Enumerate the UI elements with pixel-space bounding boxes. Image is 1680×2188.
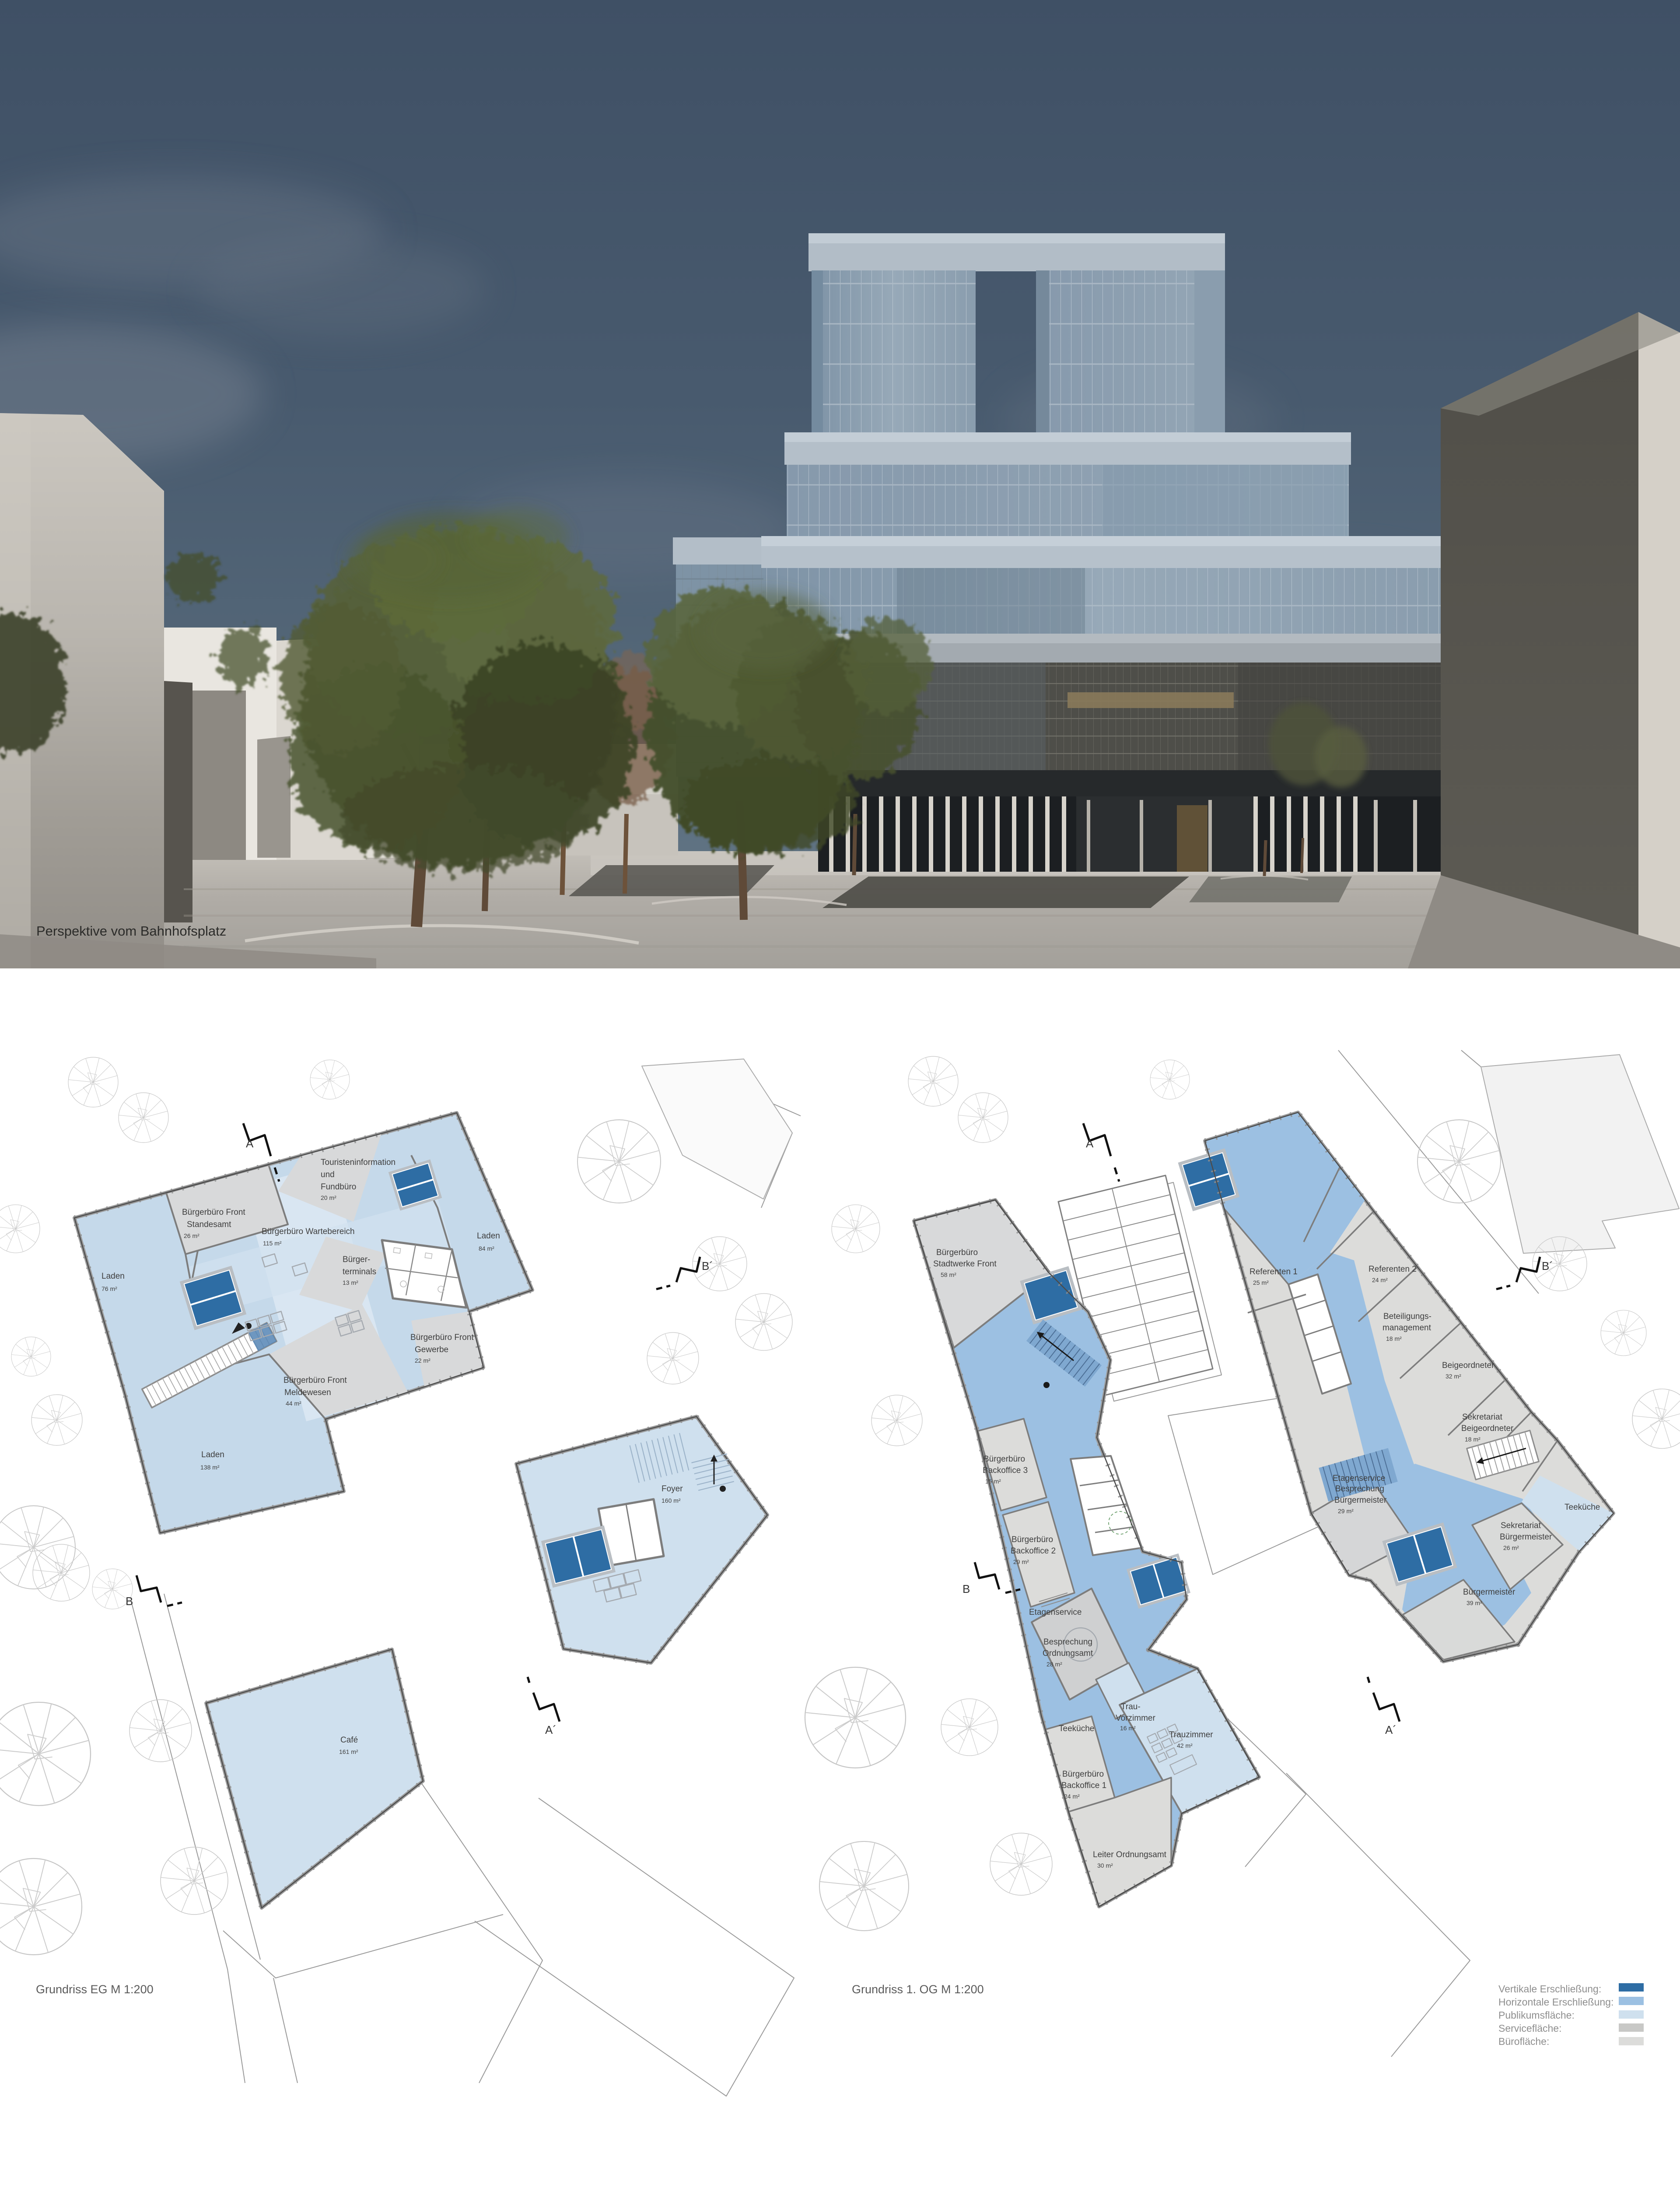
svg-text:28 m²: 28 m²: [1046, 1661, 1062, 1668]
svg-text:Bürgerbüro: Bürgerbüro: [1062, 1770, 1104, 1779]
svg-text:Laden: Laden: [477, 1231, 500, 1241]
svg-text:18 m²: 18 m²: [1465, 1436, 1480, 1443]
svg-text:Etagenservice: Etagenservice: [1333, 1474, 1385, 1483]
svg-text:management: management: [1382, 1323, 1431, 1332]
svg-text:Bürgerbüro: Bürgerbüro: [936, 1248, 978, 1257]
svg-text:A´: A´: [545, 1723, 556, 1736]
svg-text:Horizontale Erschließung:: Horizontale Erschließung:: [1498, 1996, 1613, 2008]
svg-text:Beteiligungs-: Beteiligungs-: [1383, 1312, 1431, 1321]
svg-text:B´: B´: [702, 1259, 713, 1273]
svg-text:Leiter Ordnungsamt: Leiter Ordnungsamt: [1093, 1850, 1167, 1859]
svg-text:und: und: [321, 1170, 335, 1179]
svg-text:Ordnungsamt: Ordnungsamt: [1043, 1649, 1093, 1658]
svg-text:58 m²: 58 m²: [941, 1271, 956, 1278]
svg-text:B: B: [962, 1582, 970, 1595]
svg-text:Servicefläche:: Servicefläche:: [1498, 2023, 1561, 2034]
svg-text:44 m²: 44 m²: [286, 1400, 301, 1407]
svg-text:Meldewesen: Meldewesen: [284, 1388, 331, 1397]
svg-text:Referenten 1: Referenten 1: [1249, 1267, 1298, 1276]
svg-text:18 m²: 18 m²: [1386, 1335, 1402, 1342]
svg-text:Trauzimmer: Trauzimmer: [1169, 1730, 1213, 1739]
svg-text:Grundriss 1. OG M 1:200: Grundriss 1. OG M 1:200: [852, 1983, 984, 1996]
svg-text:Perspektive vom Bahnhofsplatz: Perspektive vom Bahnhofsplatz: [36, 923, 226, 939]
svg-text:Laden: Laden: [101, 1272, 125, 1281]
svg-text:16 m²: 16 m²: [1120, 1725, 1136, 1732]
svg-text:Referenten 2: Referenten 2: [1368, 1265, 1417, 1274]
svg-text:24 m²: 24 m²: [1372, 1276, 1388, 1283]
svg-text:76 m²: 76 m²: [101, 1285, 117, 1292]
svg-text:Stadtwerke Front: Stadtwerke Front: [933, 1259, 997, 1269]
svg-text:A: A: [246, 1137, 254, 1150]
svg-text:25 m²: 25 m²: [1253, 1279, 1269, 1286]
svg-text:138 m²: 138 m²: [200, 1464, 220, 1471]
svg-text:A´: A´: [1385, 1723, 1396, 1736]
svg-text:Touristeninformation: Touristeninformation: [321, 1158, 395, 1167]
svg-text:Vertikale Erschließung:: Vertikale Erschließung:: [1498, 1983, 1601, 1995]
svg-text:29 m²: 29 m²: [1013, 1558, 1029, 1565]
svg-text:Besprechung: Besprechung: [1335, 1484, 1384, 1494]
svg-text:Backoffice 2: Backoffice 2: [1011, 1546, 1056, 1556]
svg-text:B´: B´: [1542, 1259, 1553, 1273]
svg-text:115 m²: 115 m²: [263, 1240, 282, 1247]
svg-text:Standesamt: Standesamt: [187, 1220, 231, 1229]
svg-text:Sekretariat: Sekretariat: [1462, 1413, 1503, 1422]
svg-text:terminals: terminals: [343, 1267, 376, 1276]
svg-text:Bürgermeister: Bürgermeister: [1500, 1532, 1552, 1542]
svg-text:Teeküche: Teeküche: [1564, 1503, 1600, 1512]
svg-text:Bürgerbüro: Bürgerbüro: [983, 1455, 1025, 1464]
svg-text:B: B: [126, 1595, 133, 1608]
svg-text:29 m²: 29 m²: [1338, 1508, 1354, 1515]
svg-text:26 m²: 26 m²: [1503, 1544, 1519, 1551]
svg-text:A: A: [1086, 1137, 1094, 1150]
svg-text:Beigeordneter: Beigeordneter: [1461, 1424, 1514, 1433]
svg-text:Gewerbe: Gewerbe: [415, 1345, 448, 1354]
svg-text:Bürger-: Bürger-: [343, 1255, 370, 1264]
svg-text:160 m²: 160 m²: [661, 1497, 681, 1504]
svg-text:Laden: Laden: [201, 1450, 224, 1459]
svg-text:32 m²: 32 m²: [1445, 1373, 1461, 1380]
svg-text:Fundbüro: Fundbüro: [321, 1182, 356, 1192]
svg-text:Etagenservice: Etagenservice: [1029, 1608, 1081, 1617]
svg-text:Sekretariat: Sekretariat: [1501, 1521, 1541, 1530]
svg-text:Bürgerbüro Front: Bürgerbüro Front: [283, 1376, 347, 1385]
svg-text:Bürgermeister: Bürgermeister: [1334, 1496, 1387, 1505]
svg-text:13 m²: 13 m²: [343, 1279, 358, 1286]
svg-text:30 m²: 30 m²: [1097, 1862, 1113, 1869]
svg-text:Bürofläche:: Bürofläche:: [1498, 2036, 1549, 2047]
svg-text:Besprechung: Besprechung: [1043, 1637, 1092, 1647]
svg-text:Backoffice 3: Backoffice 3: [983, 1466, 1028, 1475]
svg-text:Bürgerbüro Front: Bürgerbüro Front: [182, 1208, 245, 1217]
svg-text:Bürgerbüro: Bürgerbüro: [1011, 1535, 1053, 1544]
svg-text:22 m²: 22 m²: [415, 1357, 430, 1364]
svg-text:Trau-: Trau-: [1121, 1702, 1141, 1711]
svg-text:84 m²: 84 m²: [479, 1245, 494, 1252]
svg-text:Teeküche: Teeküche: [1059, 1724, 1094, 1733]
svg-text:20 m²: 20 m²: [321, 1194, 336, 1201]
svg-text:Bürgermeister: Bürgermeister: [1463, 1588, 1515, 1597]
svg-text:Café: Café: [340, 1736, 358, 1745]
svg-text:Bürgerbüro Front: Bürgerbüro Front: [410, 1333, 474, 1342]
svg-text:Backoffice 1: Backoffice 1: [1061, 1781, 1106, 1790]
svg-text:Beigeordneter: Beigeordneter: [1442, 1361, 1494, 1370]
svg-text:161 m²: 161 m²: [339, 1748, 358, 1755]
svg-text:Bürgerbüro Wartebereich: Bürgerbüro Wartebereich: [262, 1227, 355, 1236]
svg-text:Grundriss EG M 1:200: Grundriss EG M 1:200: [36, 1983, 154, 1996]
svg-text:42 m²: 42 m²: [1177, 1742, 1193, 1749]
svg-text:26 m²: 26 m²: [184, 1232, 199, 1239]
svg-text:Foyer: Foyer: [661, 1484, 683, 1494]
svg-text:39 m²: 39 m²: [1466, 1599, 1482, 1606]
svg-text:Publikumsfläche:: Publikumsfläche:: [1498, 2009, 1575, 2021]
svg-text:Vorzimmer: Vorzimmer: [1116, 1714, 1155, 1723]
